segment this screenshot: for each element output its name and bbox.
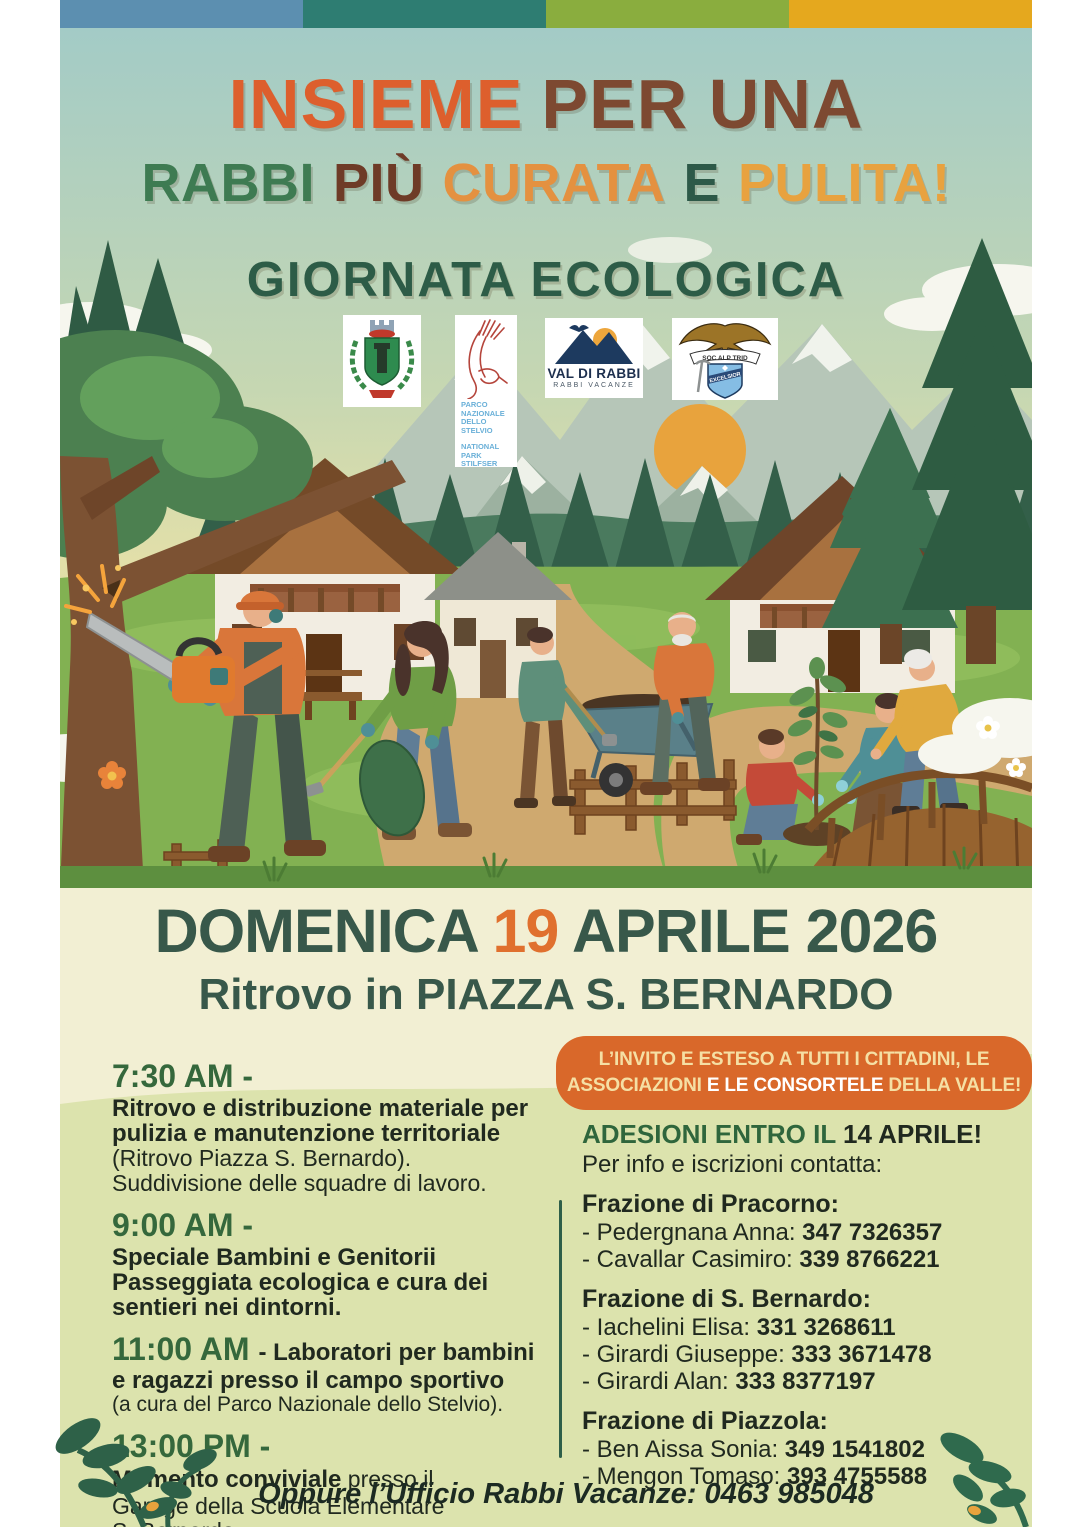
contact-group-title: Frazione di Pracorno: [582,1190,1032,1219]
headline-line2: RABBIPIÙCURATAEPULITA! [60,152,1032,214]
deadline-date: 14 APRILE! [843,1119,982,1149]
headline-word-pulita: PULITA! [738,152,950,214]
contact-group-title: Frazione di S. Bernardo: [582,1285,1032,1314]
contact-name: - Ben Aissa Sonia: [582,1436,785,1463]
schedule-text: Suddivisione delle squadre di lavoro. [112,1171,564,1196]
contact-phone: 339 8766221 [799,1246,939,1273]
schedule-text: Passeggiata ecologica e cura dei [112,1270,564,1295]
logo-val-di-rabbi: VAL DI RABBI RABBI VACANZE [545,318,643,398]
headline-line1: INSIEMEPER UNA [60,64,1032,144]
hero-illustration-section: INSIEMEPER UNA RABBIPIÙCURATAEPULITA! GI… [60,28,1032,888]
contact-entry: - Cavallar Casimiro: 339 8766221 [582,1246,1032,1273]
footer-office-line: Oppure l’Ufficio Rabbi Vacanze: 0463 985… [100,1478,1032,1511]
val-di-rabbi-mountains-icon [545,318,643,364]
schedule-text: - Laboratori per bambini [258,1339,534,1366]
top-color-bars [60,0,1032,28]
headline-word-piu: PIÙ [333,152,425,214]
logo-alpine-society: SOC ALP TRID EXCELSIOR [672,318,778,400]
schedule-time-1100: 11:00 AM [112,1331,258,1367]
contact-group-pracorno: Frazione di Pracorno: - Pedergnana Anna:… [582,1190,1032,1273]
schedule-text: (Ritrovo Piazza S. Bernardo). [112,1146,564,1171]
headline-word-curata: CURATA [443,152,666,214]
color-bar-green [546,0,789,28]
column-divider [559,1200,562,1458]
contacts-subtitle: Per info e iscrizioni contatta: [582,1150,1032,1180]
val-di-rabbi-name: VAL DI RABBI [545,366,643,381]
invitation-valle: DELLA VALLE! [888,1075,1021,1096]
invitation-consortele: E LE CONSORTELE [707,1075,889,1096]
contact-phone: 333 3671478 [791,1341,931,1368]
poster-content: INSIEMEPER UNA RABBIPIÙCURATAEPULITA! GI… [60,0,1032,1527]
event-month-year: APRILE 2026 [558,897,937,965]
meeting-point: Ritrovo in PIAZZA S. BERNARDO [60,970,1032,1020]
color-bar-yellow [789,0,1032,28]
alpine-society-eagle-icon: SOC ALP TRID EXCELSIOR [672,318,778,400]
schedule-time-900: 9:00 AM - [112,1207,564,1243]
logo-stelvio-park: PARCO NAZIONALE DELLO STELVIO NATIONAL P… [455,315,517,467]
stelvio-park-name: PARCO NAZIONALE DELLO STELVIO NATIONAL P… [461,401,515,467]
footer-label: Oppure l’Ufficio Rabbi Vacanze: [258,1478,704,1510]
headline-word-insieme: INSIEME [229,64,524,144]
schedule-text: pulizia e manutenzione territoriale [112,1121,564,1146]
registration-deadline: ADESIONI ENTRO IL 14 APRILE! [582,1118,1032,1150]
stelvio-name-italian: PARCO NAZIONALE DELLO STELVIO [461,400,505,435]
schedule-text: sentieri nei dintorni. [112,1295,564,1320]
contact-name: - Iachelini Elisa: [582,1314,757,1341]
invitation-line1: L’INVITO E ESTESO A TUTTI I CITTADINI, L… [556,1047,1032,1073]
contact-name: - Pedergnana Anna: [582,1219,802,1246]
headline-subtitle: GIORNATA ECOLOGICA [60,252,1032,308]
color-bar-blue [60,0,303,28]
contact-phone: 333 8377197 [735,1368,875,1395]
invitation-associations: ASSOCIAZIONI [567,1075,707,1096]
schedule-time-1100-line: 11:00 AM - Laboratori per bambini [112,1331,564,1368]
schedule-entry-730: 7:30 AM - Ritrovo e distribuzione materi… [112,1058,564,1196]
contact-entry: - Iachelini Elisa: 331 3268611 [582,1314,1032,1341]
municipal-crest-icon [343,315,421,405]
contact-entry: - Girardi Giuseppe: 333 3671478 [582,1341,1032,1368]
contact-group-s-bernardo: Frazione di S. Bernardo: - Iachelini Eli… [582,1285,1032,1395]
foreground-grass [60,866,1032,888]
contact-phone: 331 3268611 [757,1314,896,1341]
contact-entry: - Girardi Alan: 333 8377197 [582,1368,1032,1395]
headline-word-rabbi: RABBI [142,152,316,214]
schedule-entry-900: 9:00 AM - Speciale Bambini e Genitorii P… [112,1207,564,1320]
schedule-text: Ritrovo e distribuzione materiale per [112,1096,564,1121]
headline-word-e: E [684,152,721,214]
contact-entry: - Pedergnana Anna: 347 7326357 [582,1219,1032,1246]
contact-phone: 349 1541802 [785,1436,925,1463]
stelvio-eagle-icon [455,315,517,399]
contact-phone: 347 7326357 [802,1219,942,1246]
footer-phone: 0463 985048 [705,1478,874,1510]
contact-name: - Girardi Giuseppe: [582,1341,791,1368]
schedule-time-730: 7:30 AM - [112,1058,564,1094]
invitation-line2: ASSOCIAZIONI E LE CONSORTELE DELLA VALLE… [556,1073,1032,1099]
contact-name: - Cavallar Casimiro: [582,1246,799,1273]
deadline-label: ADESIONI ENTRO IL [582,1119,843,1149]
alpine-society-ribbon-text: SOC ALP TRID [702,355,748,362]
stelvio-name-english: NATIONAL PARK STILFSER JOCH [461,443,515,467]
invitation-banner: L’INVITO E ESTESO A TUTTI I CITTADINI, L… [556,1036,1032,1110]
date-band: DOMENICA 19 APRILE 2026 Ritrovo in PIAZZ… [60,888,1032,1042]
color-bar-teal [303,0,546,28]
logo-municipal-crest [343,315,421,407]
schedule-text: Speciale Bambini e Genitorii [112,1245,564,1270]
contact-name: - Girardi Alan: [582,1368,735,1395]
event-day-label: DOMENICA [155,897,493,965]
event-poster: INSIEMEPER UNA RABBIPIÙCURATAEPULITA! GI… [0,0,1080,1527]
headline-word-per-una: PER UNA [541,64,863,144]
event-day-number: 19 [492,897,558,965]
rabbi-vacanze-label: RABBI VACANZE [545,382,643,389]
event-date: DOMENICA 19 APRILE 2026 [60,896,1032,966]
